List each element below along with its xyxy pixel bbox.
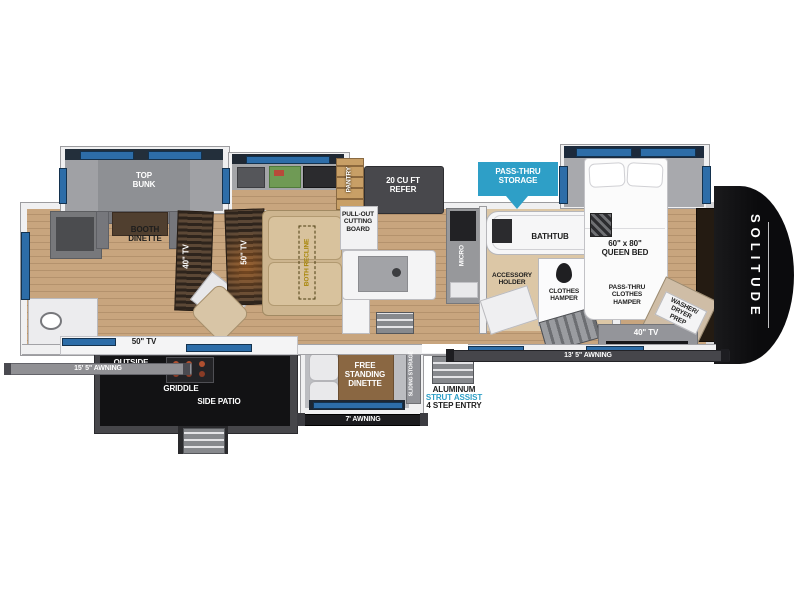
booth-dinette-label: BOOTH DINETTE: [110, 226, 180, 244]
front-cap: SOLITUDE: [714, 186, 794, 364]
kitchen-slide-floor: [232, 190, 344, 210]
pantry-label: PANTRY: [345, 143, 352, 217]
tv-40-bedroom-label: 40" TV: [616, 329, 676, 338]
awning-right-cap-b: [721, 349, 729, 362]
clothes-hamper-label: CLOTHES HAMPER: [540, 288, 588, 303]
toilet: [556, 263, 572, 283]
bedroom-side-window-left: [559, 166, 568, 204]
bedroom-top-window-1: [576, 148, 632, 157]
refer-label: 20 CU FT REFER: [372, 177, 434, 195]
rv-floorplan-diagram: SOLITUDE TOP BUNK PASS-THRU STORAGE BOOT…: [0, 0, 800, 600]
awning-door-label: 7' AWNING: [299, 415, 427, 425]
awning-door-side: 7' AWNING: [298, 414, 428, 426]
bathtub-label: BATHTUB: [514, 233, 586, 242]
bunk-top-window-1: [80, 151, 134, 160]
front-cap-brand-label: SOLITUDE: [748, 214, 763, 336]
tv-50-wall-label: 50" TV: [241, 222, 250, 282]
tub-control: [492, 219, 512, 243]
awning-right-label: 13' 5" AWNING: [447, 351, 729, 361]
micro-label: MICRO: [458, 222, 465, 290]
rear-bath-sink: [40, 312, 62, 330]
awning-left-cap-b: [183, 363, 190, 375]
tv-50-outside-label: 50" TV: [118, 338, 170, 347]
pass-thru-storage-label: PASS-THRU STORAGE: [478, 168, 558, 186]
side-patio-label: SIDE PATIO: [184, 398, 254, 407]
rear-tv-screen: [56, 217, 94, 251]
awning-door-cap-a: [297, 413, 305, 426]
awning-right: 13' 5" AWNING: [446, 350, 730, 362]
front-cap-brand-underline: [768, 222, 769, 328]
free-standing-dinette-label: FREE STANDING DINETTE: [334, 362, 396, 389]
booth-bench-left: [96, 211, 109, 249]
tv-40-wall-label: 40" TV: [183, 226, 192, 286]
bunk-side-window-left: [59, 168, 67, 204]
island-faucet: [392, 268, 401, 277]
sliding-storage-label: SLIDING STORAGE: [410, 346, 416, 401]
island-bench: [376, 312, 414, 334]
bedroom-top-window-2: [640, 148, 696, 157]
griddle-label: GRIDDLE: [150, 385, 212, 394]
dinette-window: [313, 402, 403, 409]
pillow-left: [588, 162, 625, 188]
awning-door-cap-b: [420, 413, 428, 426]
queen-bed-label: 60" x 80" QUEEN BED: [588, 240, 662, 258]
shower-caddy: [590, 213, 612, 237]
bedroom-tv-bar: [606, 341, 688, 344]
cutting-board-label: PULL-OUT CUTTING BOARD: [337, 211, 379, 233]
kitchen-top-window: [246, 156, 330, 164]
rear-wall-window: [21, 232, 30, 300]
veggie-accent: [274, 170, 284, 176]
accessory-holder-label: ACCESSORY HOLDER: [484, 272, 540, 287]
awning-left-cap-a: [4, 363, 11, 375]
top-bunk-label: TOP BUNK: [100, 172, 188, 190]
both-recline-label: BOTH RECLINE: [299, 226, 316, 300]
pass-thru-clothes-hamper-label: PASS-THRU CLOTHES HAMPER: [594, 284, 660, 306]
door-side-window-1: [62, 338, 116, 346]
patio-ladder: [183, 428, 225, 454]
pass-thru-arrow-icon: [506, 196, 528, 209]
awning-left: 15' 5" AWNING: [4, 363, 192, 375]
awning-left-label: 15' 5" AWNING: [5, 364, 191, 374]
door-side-window-2: [186, 344, 252, 352]
pass-thru-storage-banner: PASS-THRU STORAGE: [478, 162, 558, 196]
kitchen-sink: [237, 167, 265, 188]
bunk-top-window-2: [148, 151, 202, 160]
entry-step-count-label: 4 STEP ENTRY: [414, 402, 494, 411]
awning-right-cap-a: [446, 349, 454, 362]
pillow-right: [626, 162, 663, 188]
bunk-side-window-right: [222, 168, 230, 204]
bedroom-side-window-right: [702, 166, 711, 204]
